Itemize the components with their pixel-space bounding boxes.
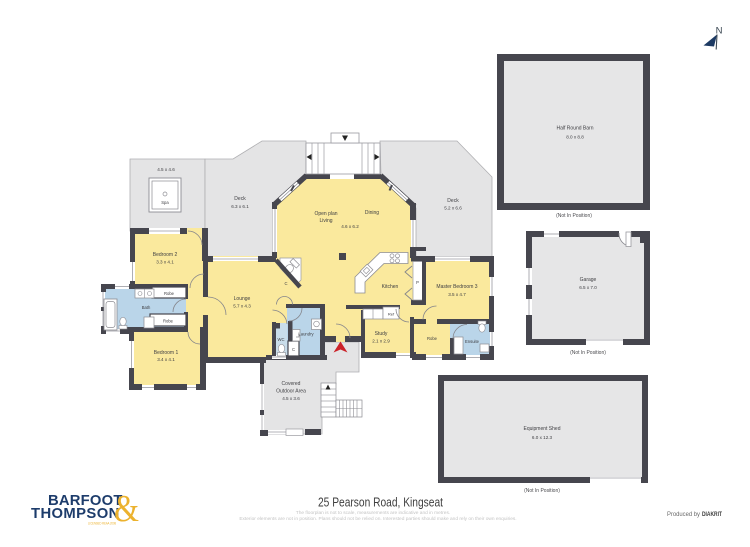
svg-text:DIAKRIT: DIAKRIT	[702, 511, 723, 518]
svg-text:The floorplan is not to scale,: The floorplan is not to scale, measureme…	[296, 510, 450, 516]
svg-text:Produced by: Produced by	[667, 511, 701, 518]
svg-text:Exterior elements are not in p: Exterior elements are not in position. P…	[239, 516, 516, 522]
svg-text:25 Pearson Road, Kingseat: 25 Pearson Road, Kingseat	[318, 495, 443, 510]
